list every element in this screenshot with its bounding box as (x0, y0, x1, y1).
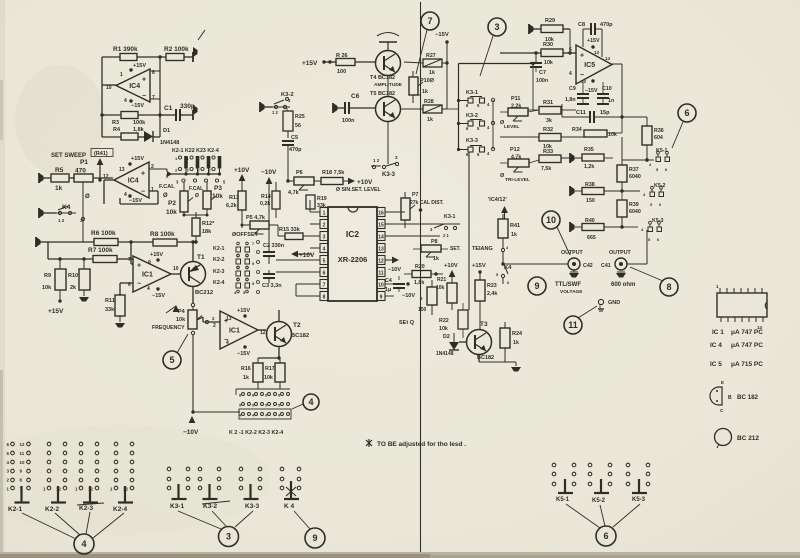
svg-text:R1 390k: R1 390k (113, 46, 138, 53)
svg-text:18k: 18k (202, 229, 212, 235)
svg-text:10k: 10k (212, 193, 223, 200)
svg-text:K2-2: K2-2 (45, 506, 59, 513)
svg-text:+15V: +15V (150, 252, 163, 258)
svg-text:IC1: IC1 (229, 328, 240, 335)
svg-text:R24: R24 (512, 331, 523, 337)
svg-text:2 1: 2 1 (443, 233, 449, 238)
svg-text:10: 10 (106, 85, 112, 91)
svg-text:9: 9 (148, 260, 151, 266)
svg-text:1,8k: 1,8k (414, 280, 424, 286)
svg-text:10k: 10k (544, 60, 553, 66)
svg-text:5: 5 (323, 259, 326, 265)
svg-text:600 ohm: 600 ohm (611, 282, 635, 288)
svg-text:R36: R36 (654, 128, 664, 134)
svg-text:Ø: Ø (195, 193, 199, 199)
svg-text:2: 2 (213, 323, 216, 329)
svg-text:4: 4 (81, 539, 86, 549)
svg-text:−10V: −10V (261, 169, 277, 176)
svg-text:+: + (137, 263, 141, 270)
svg-text:Ø: Ø (163, 193, 168, 199)
svg-text:4: 4 (124, 192, 127, 198)
svg-text:K3-3: K3-3 (382, 172, 396, 178)
svg-text:12: 12 (20, 442, 25, 447)
svg-text:K2-4: K2-4 (113, 506, 127, 513)
svg-text:9: 9 (312, 533, 317, 543)
svg-text:4,7k: 4,7k (288, 190, 300, 196)
svg-text:3k: 3k (546, 118, 552, 124)
svg-text:R16: R16 (241, 366, 251, 372)
svg-text:R19: R19 (317, 196, 327, 202)
svg-text:−15V: −15V (237, 351, 250, 357)
svg-text:P2: P2 (168, 200, 176, 207)
svg-text:R7 100k: R7 100k (88, 247, 113, 254)
svg-text:1,2k: 1,2k (584, 164, 594, 170)
svg-text:K3-3: K3-3 (466, 138, 478, 144)
svg-text:14: 14 (605, 56, 611, 61)
svg-text:15p: 15p (600, 110, 610, 116)
svg-text:T2: T2 (293, 322, 301, 329)
svg-text:R30: R30 (543, 42, 553, 48)
svg-text:IC 4: IC 4 (710, 342, 722, 349)
svg-text:150: 150 (586, 198, 595, 204)
svg-text:'IC4/12': 'IC4/12' (488, 197, 508, 203)
svg-text:4: 4 (323, 247, 326, 253)
svg-text:2: 2 (323, 223, 326, 229)
svg-text:R29: R29 (545, 18, 555, 24)
svg-text:TO BE adjusted for tho les: TO BE adjusted for tho lesd . (377, 441, 466, 448)
svg-text:R3: R3 (112, 120, 119, 126)
svg-text:6040: 6040 (629, 174, 641, 180)
svg-text:−: − (580, 72, 584, 79)
svg-text:+15V: +15V (48, 308, 64, 315)
svg-text:P6: P6 (296, 170, 303, 176)
svg-text:SET.: SET. (450, 246, 461, 252)
svg-text:13: 13 (378, 247, 384, 253)
svg-text:10: 10 (378, 283, 384, 289)
svg-text:P12: P12 (510, 147, 520, 153)
svg-text:R17: R17 (265, 366, 275, 372)
svg-text:VOLTAGE: VOLTAGE (560, 289, 583, 295)
svg-text:12: 12 (103, 174, 109, 180)
svg-text:1N4148: 1N4148 (436, 351, 454, 357)
svg-text:XR-2206: XR-2206 (338, 255, 368, 264)
svg-text:R22: R22 (439, 318, 449, 324)
svg-text:11: 11 (20, 451, 25, 456)
svg-text:10: 10 (173, 266, 179, 272)
svg-text:8: 8 (323, 295, 326, 301)
svg-text:R18 7,5k: R18 7,5k (322, 170, 345, 176)
svg-text:C4: C4 (385, 278, 392, 284)
svg-text:8: 8 (666, 282, 671, 292)
svg-text:BC 212: BC 212 (737, 435, 759, 442)
svg-text:K2-1: K2-1 (213, 246, 225, 252)
svg-text:6,2k: 6,2k (226, 203, 238, 209)
svg-text:K2-2: K2-2 (213, 257, 225, 263)
svg-text:R28: R28 (424, 99, 434, 105)
svg-text:13: 13 (594, 50, 600, 55)
svg-text:14: 14 (378, 235, 384, 241)
svg-text:R39: R39 (629, 202, 639, 208)
svg-text:C2 330n: C2 330n (263, 243, 285, 249)
svg-text:C41: C41 (601, 263, 611, 269)
svg-text:P4: P4 (178, 309, 186, 315)
svg-text:K2-4: K2-4 (213, 280, 225, 286)
svg-text:F.CAL: F.CAL (159, 184, 175, 190)
svg-text:1 2: 1 2 (373, 158, 380, 163)
svg-text:R32: R32 (543, 127, 553, 133)
svg-text:μA 715 PC: μA 715 PC (731, 361, 763, 368)
svg-text:−15V: −15V (435, 32, 449, 38)
svg-text:16: 16 (378, 211, 384, 217)
svg-text:TRI-LEVEL: TRI-LEVEL (505, 177, 530, 183)
svg-text:B: B (728, 395, 732, 401)
svg-text:IC5: IC5 (584, 62, 595, 69)
svg-text:4: 4 (124, 98, 127, 104)
svg-text:K5-2: K5-2 (592, 498, 606, 504)
svg-text:11: 11 (568, 320, 578, 330)
svg-text:K3-1: K3-1 (170, 503, 184, 510)
svg-text:K3-3: K3-3 (245, 503, 259, 510)
svg-text:E: E (721, 380, 724, 385)
svg-text:150: 150 (418, 307, 427, 313)
svg-text:R12*: R12* (202, 221, 215, 227)
svg-text:33k: 33k (317, 203, 326, 209)
svg-text:11: 11 (378, 271, 384, 277)
svg-text:OUTPUT: OUTPUT (561, 250, 584, 256)
svg-text:−10V: −10V (402, 293, 415, 299)
svg-text:IC4: IC4 (129, 83, 140, 90)
svg-text:3: 3 (494, 22, 499, 32)
svg-text:R10: R10 (68, 273, 78, 279)
svg-text:665: 665 (587, 235, 596, 241)
svg-text:3: 3 (226, 532, 231, 542)
svg-text:C11: C11 (576, 110, 586, 116)
svg-text:R4: R4 (113, 127, 121, 133)
svg-text:OUTPUT: OUTPUT (609, 250, 632, 256)
svg-text:1 2: 1 2 (58, 218, 65, 223)
svg-text:P7: P7 (412, 192, 419, 198)
svg-text:604: 604 (654, 135, 663, 141)
svg-text:−15V: −15V (129, 198, 142, 204)
svg-text:P11: P11 (511, 96, 520, 102)
svg-text:D2: D2 (443, 334, 450, 340)
svg-text:6: 6 (684, 108, 689, 118)
svg-text:R33: R33 (543, 149, 553, 155)
svg-text:−15V: −15V (152, 293, 165, 299)
svg-text:2,4k: 2,4k (487, 291, 497, 297)
svg-text:9: 9 (534, 281, 539, 291)
svg-text:C42: C42 (583, 263, 593, 269)
svg-text:R8 100k: R8 100k (150, 231, 175, 238)
svg-text:1,8n: 1,8n (565, 97, 576, 103)
svg-text:7: 7 (427, 16, 432, 26)
svg-text:R20: R20 (415, 264, 425, 270)
svg-text:P8: P8 (431, 239, 438, 245)
svg-text:1,8k: 1,8k (133, 127, 145, 133)
svg-text:1: 1 (151, 187, 154, 193)
svg-text:1k: 1k (243, 375, 249, 381)
svg-text:7: 7 (152, 95, 155, 101)
svg-text:27k CAL DIST.: 27k CAL DIST. (410, 200, 444, 206)
svg-text:10k: 10k (166, 209, 177, 216)
svg-text:+: + (141, 171, 145, 178)
svg-text:R35: R35 (584, 147, 594, 153)
svg-text:R27: R27 (426, 53, 436, 59)
svg-text:1k: 1k (427, 117, 433, 123)
svg-text:BC 182: BC 182 (737, 394, 759, 401)
svg-text:1: 1 (323, 211, 326, 217)
svg-text:R23: R23 (487, 283, 497, 289)
svg-text:−10V: −10V (183, 429, 199, 436)
svg-text:+10V: +10V (299, 252, 315, 259)
svg-text:LEVEL: LEVEL (504, 124, 520, 130)
svg-text:+15V: +15V (237, 308, 250, 314)
svg-text:4: 4 (226, 340, 229, 346)
svg-text:6: 6 (603, 531, 608, 541)
svg-text:P1: P1 (80, 159, 88, 166)
svg-text:IC1: IC1 (142, 272, 153, 279)
svg-text:R34: R34 (572, 127, 582, 133)
svg-text:ØOFFSET: ØOFFSET (232, 232, 259, 238)
svg-text:330p: 330p (180, 103, 195, 110)
svg-text:TTL/SWF: TTL/SWF (555, 282, 581, 288)
svg-text:R21: R21 (437, 277, 446, 283)
svg-text:4: 4 (569, 71, 572, 77)
svg-text:T1: T1 (197, 254, 205, 261)
svg-text:BC212: BC212 (195, 290, 213, 296)
svg-text:100: 100 (337, 69, 346, 75)
svg-text:3: 3 (323, 235, 326, 241)
svg-text:BC182: BC182 (291, 333, 309, 339)
svg-text:K2-3: K2-3 (79, 505, 93, 512)
svg-text:K2-1: K2-1 (8, 506, 22, 513)
svg-text:FREQUENCY: FREQUENCY (152, 325, 185, 331)
svg-text:1: 1 (120, 72, 123, 78)
svg-text:K 4: K 4 (284, 503, 295, 510)
svg-text:−: − (142, 93, 146, 100)
svg-text:R5: R5 (55, 167, 64, 174)
svg-text:100k: 100k (133, 120, 146, 126)
svg-text:Ø SIN.SET. LEVEL: Ø SIN.SET. LEVEL (336, 187, 382, 193)
svg-text:K2-1 K22 K23 K2-4: K2-1 K22 K23 K2-4 (172, 148, 219, 154)
svg-text:56: 56 (295, 123, 301, 129)
svg-text:13: 13 (226, 316, 232, 322)
svg-text:R9: R9 (44, 273, 51, 279)
svg-text:F.CAL: F.CAL (189, 186, 203, 192)
svg-text:12: 12 (378, 259, 384, 265)
svg-text:7: 7 (323, 283, 326, 289)
svg-text:1 2: 1 2 (272, 110, 278, 115)
svg-text:100n: 100n (342, 118, 355, 124)
svg-text:−: − (137, 281, 141, 288)
svg-text:+15V: +15V (131, 156, 144, 162)
svg-text:10: 10 (20, 460, 25, 465)
svg-text:4: 4 (308, 397, 313, 407)
svg-text:R25: R25 (295, 114, 305, 120)
svg-text:TEIANG: TEIANG (472, 246, 493, 252)
svg-text:+15V: +15V (472, 263, 486, 269)
svg-text:T4 BC182: T4 BC182 (370, 75, 395, 81)
svg-text:2k: 2k (70, 285, 77, 291)
svg-text:GND: GND (608, 300, 620, 306)
svg-text:9: 9 (380, 295, 383, 301)
svg-text:K 2 -1 K2-2 K2-3 K2-4: K 2 -1 K2-2 K2-3 K2-4 (229, 430, 283, 436)
svg-text:+10V: +10V (444, 263, 458, 269)
svg-text:−: − (141, 189, 145, 196)
svg-text:12: 12 (260, 330, 266, 336)
svg-text:K2-3: K2-3 (213, 269, 225, 275)
svg-text:10k: 10k (42, 285, 52, 291)
svg-text:P5 4,7k: P5 4,7k (246, 215, 266, 221)
svg-text:K5-1: K5-1 (556, 497, 570, 503)
svg-text:R11: R11 (105, 298, 115, 304)
svg-text:IC 5: IC 5 (710, 361, 722, 368)
svg-text:μA 747 PC: μA 747 PC (731, 329, 763, 336)
svg-text:T5 BC182: T5 BC182 (370, 91, 395, 97)
svg-text:6: 6 (569, 47, 572, 53)
svg-text:5: 5 (169, 355, 174, 365)
svg-text:+15V: +15V (302, 60, 318, 67)
svg-text:−10V: −10V (388, 267, 401, 273)
svg-text:1k: 1k (429, 70, 435, 76)
svg-text:1k: 1k (422, 89, 428, 95)
svg-text:K3-1: K3-1 (444, 214, 456, 220)
svg-text:15: 15 (378, 223, 384, 229)
svg-text:C10: C10 (602, 86, 612, 92)
svg-text:1μ: 1μ (385, 287, 391, 293)
svg-text:10k: 10k (176, 317, 186, 323)
svg-text:μA 747 PC: μA 747 PC (731, 342, 763, 349)
svg-text:470p: 470p (600, 22, 613, 28)
svg-text:+15V: +15V (587, 38, 600, 44)
svg-text:R41: R41 (510, 223, 520, 229)
svg-text:1k: 1k (433, 256, 439, 262)
svg-text:C7: C7 (539, 70, 546, 76)
svg-text:100n: 100n (536, 78, 548, 84)
svg-text:C8: C8 (578, 22, 585, 28)
svg-text:10: 10 (581, 79, 587, 84)
svg-text:10: 10 (546, 215, 556, 225)
svg-text:R15 33k: R15 33k (279, 227, 301, 233)
svg-text:C1: C1 (164, 105, 173, 112)
svg-text:+: + (142, 77, 146, 84)
svg-text:R6 100k: R6 100k (91, 230, 116, 237)
svg-text:C6: C6 (351, 93, 360, 100)
svg-text:C3 3,3n: C3 3,3n (262, 283, 282, 289)
svg-text:10k: 10k (264, 375, 273, 381)
svg-text:IC4: IC4 (128, 178, 139, 185)
svg-text:R31: R31 (543, 100, 553, 106)
svg-text:P3: P3 (214, 185, 222, 192)
svg-text:SEt Q: SEt Q (399, 320, 415, 326)
svg-text:IC 1: IC 1 (712, 329, 724, 336)
svg-text:1N4148: 1N4148 (160, 140, 179, 146)
svg-text:P10Ø: P10Ø (420, 78, 435, 84)
svg-text:470p: 470p (289, 147, 302, 153)
svg-text:K5-3: K5-3 (632, 497, 646, 503)
svg-text:7,5k: 7,5k (541, 166, 551, 172)
svg-text:+10V: +10V (357, 179, 373, 186)
svg-text:1k: 1k (511, 232, 517, 238)
svg-text:D1: D1 (163, 128, 170, 134)
svg-text:6040: 6040 (629, 209, 641, 215)
svg-text:1k: 1k (55, 185, 63, 192)
svg-text:−15V: −15V (131, 103, 144, 109)
svg-text:1k: 1k (513, 340, 519, 346)
svg-text:C9: C9 (569, 86, 576, 92)
svg-text:Ø: Ø (85, 194, 90, 200)
svg-text:13: 13 (119, 167, 125, 173)
svg-text:33k: 33k (105, 307, 115, 313)
svg-text:+15V: +15V (133, 63, 146, 69)
svg-text:+10V: +10V (234, 167, 250, 174)
svg-text:+: + (580, 52, 584, 59)
svg-text:K3-1: K3-1 (466, 90, 478, 96)
svg-text:R37: R37 (629, 167, 639, 173)
svg-text:K3-2: K3-2 (466, 113, 478, 119)
svg-text:4: 4 (147, 286, 150, 292)
svg-text:10k: 10k (439, 326, 448, 332)
svg-text:R2 100k: R2 100k (164, 46, 189, 53)
svg-text:IC2: IC2 (346, 229, 360, 239)
svg-text:6: 6 (323, 271, 326, 277)
svg-text:T3: T3 (480, 321, 488, 328)
